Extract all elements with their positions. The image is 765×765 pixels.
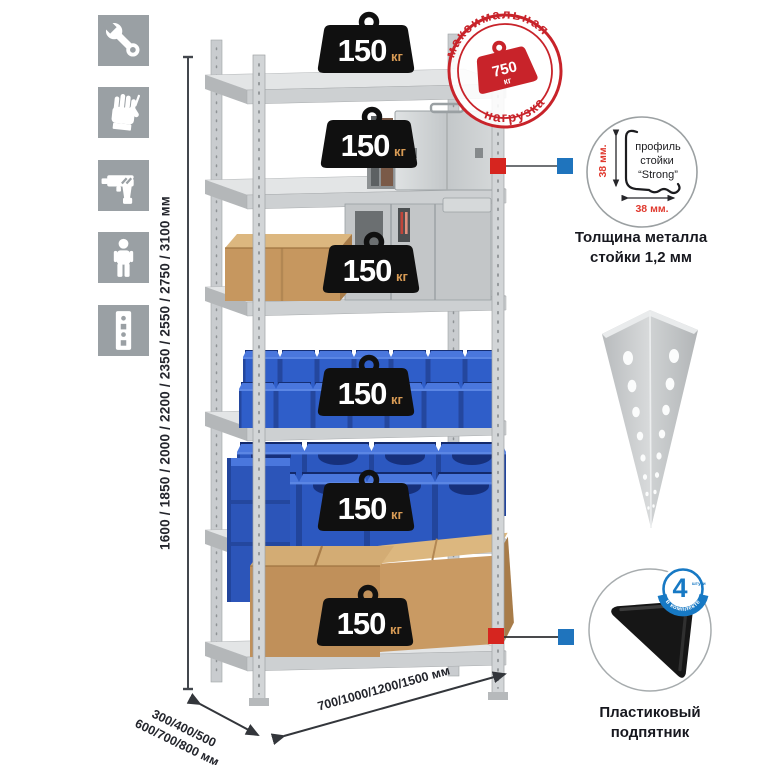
profile-caption-line1: Толщина металла — [563, 228, 719, 248]
profile-caption-line2: стойки 1,2 мм — [563, 248, 719, 268]
shelving-rack-infographic: 1600 / 1850 / 2000 / 2200 / 2350 / 2550 … — [0, 0, 765, 765]
quantity-badge-small-label: штуки — [692, 581, 706, 586]
foot-caption-line1: Пластиковый — [572, 703, 728, 723]
profile-dim-v: 38 мм. — [597, 144, 609, 177]
quantity-badge-value: 4 — [672, 573, 687, 603]
foot-marker-red — [488, 628, 504, 644]
post-profile-callout: 38 мм. 38 мм. профиль стойки “Strong” — [584, 114, 700, 230]
foot-caption-line2: подпятник — [572, 723, 728, 743]
angle-post-image — [590, 300, 710, 535]
profile-label-3: “Strong” — [638, 169, 678, 181]
profile-caption: Толщина металла стойки 1,2 мм — [563, 228, 719, 268]
profile-label-1: профиль — [635, 141, 681, 153]
profile-dim-h: 38 мм. — [635, 203, 668, 215]
foot-caption: Пластиковый подпятник — [572, 703, 728, 743]
depth-dimension-arrow — [200, 704, 258, 735]
quantity-badge: 4 штуки в комплекте — [660, 566, 706, 613]
foot-marker-blue — [558, 629, 574, 645]
profile-marker-red — [490, 158, 506, 174]
plastic-foot-callout: 4 штуки в комплекте — [575, 555, 725, 705]
profile-label-2: стойки — [640, 155, 674, 167]
profile-marker-blue — [557, 158, 573, 174]
height-dimension-line — [183, 57, 193, 689]
